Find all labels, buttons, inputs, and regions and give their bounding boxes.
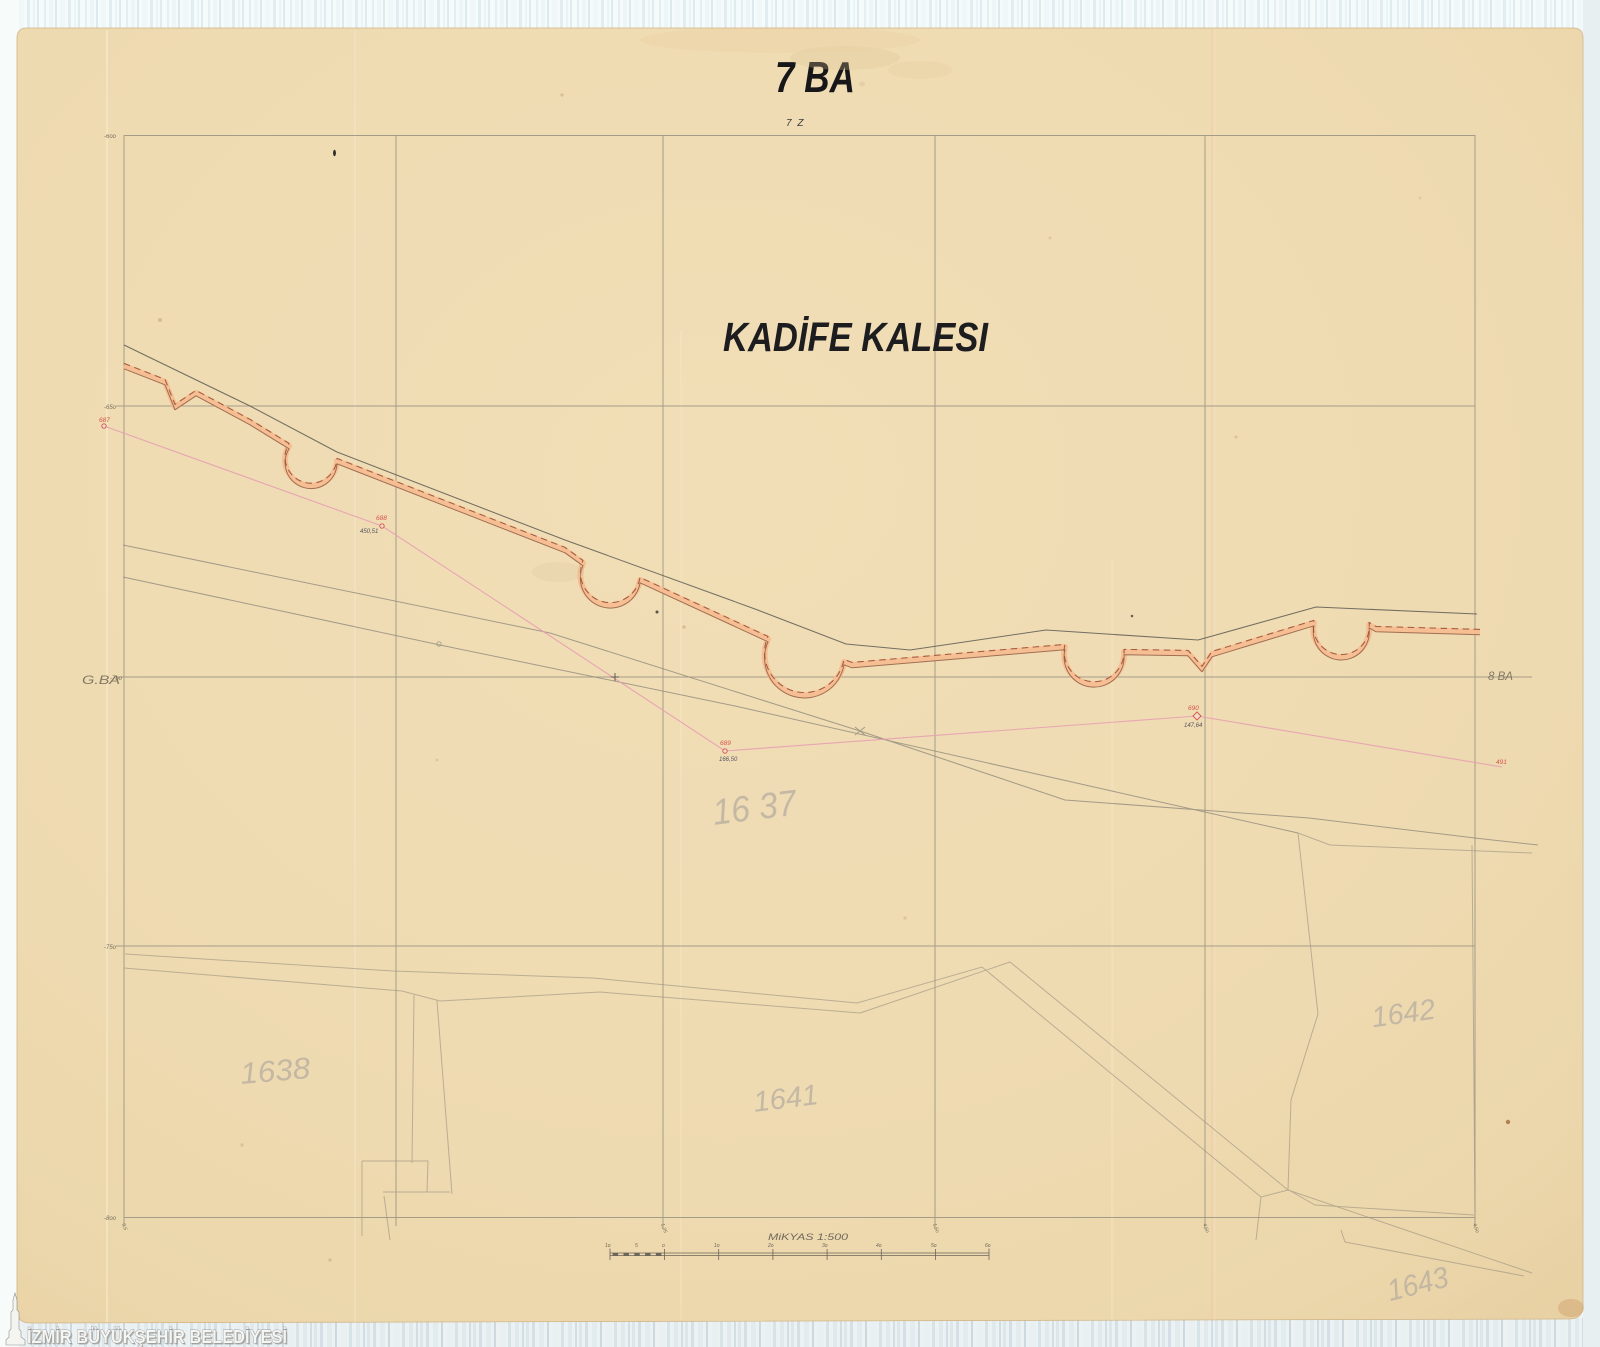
svg-text:G.BA: G.BA — [82, 673, 120, 687]
svg-text:1o: 1o — [605, 1243, 611, 1249]
svg-text:-75o: -75o — [104, 945, 117, 951]
svg-text:491: 491 — [1496, 759, 1507, 766]
svg-text:2o: 2o — [767, 1243, 774, 1249]
svg-text:687: 687 — [99, 417, 110, 424]
svg-text:-8oo: -8oo — [104, 1216, 117, 1222]
svg-text:689: 689 — [720, 740, 731, 747]
svg-text:MiKYAS 1:500: MiKYAS 1:500 — [768, 1232, 849, 1243]
svg-text:147,64: 147,64 — [1184, 723, 1203, 729]
svg-text:1o: 1o — [714, 1243, 720, 1249]
svg-text:7 Z: 7 Z — [786, 118, 805, 129]
svg-text:KADİFE KALESI: KADİFE KALESI — [723, 314, 989, 360]
svg-text:450,51: 450,51 — [360, 529, 378, 535]
svg-text:4o: 4o — [876, 1243, 882, 1249]
svg-text:690: 690 — [1188, 705, 1199, 712]
svg-text:-65o: -65o — [104, 405, 117, 411]
svg-text:8 BA: 8 BA — [1488, 669, 1513, 683]
svg-text:5o: 5o — [931, 1243, 937, 1249]
svg-text:o: o — [662, 1243, 665, 1249]
svg-text:6o: 6o — [985, 1243, 991, 1249]
svg-text:-6oo: -6oo — [104, 134, 117, 140]
svg-text:688: 688 — [376, 515, 387, 522]
svg-text:İZMİR BÜYÜKŞEHİR BELEDİYESİ: İZMİR BÜYÜKŞEHİR BELEDİYESİ — [27, 1327, 287, 1347]
svg-text:166,50: 166,50 — [719, 757, 738, 763]
svg-text:1638: 1638 — [239, 1052, 312, 1091]
svg-text:5: 5 — [635, 1243, 638, 1249]
svg-text:3o: 3o — [822, 1243, 828, 1249]
